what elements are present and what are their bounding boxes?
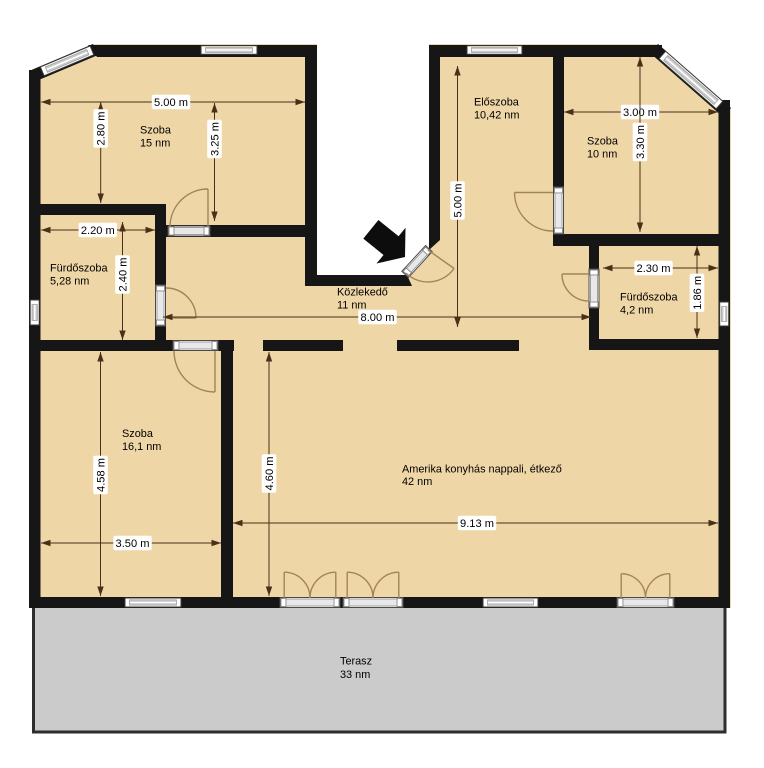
svg-text:10,42 nm: 10,42 nm — [474, 110, 519, 122]
svg-text:9.13 m: 9.13 m — [460, 518, 494, 530]
svg-text:4.58 m: 4.58 m — [95, 458, 107, 492]
svg-text:Terasz: Terasz — [340, 656, 372, 668]
svg-text:2.40 m: 2.40 m — [117, 258, 129, 292]
svg-text:10 nm: 10 nm — [587, 149, 617, 161]
svg-text:4,2 nm: 4,2 nm — [620, 305, 653, 317]
svg-text:8.00 m: 8.00 m — [361, 312, 395, 324]
svg-text:Előszoba: Előszoba — [474, 97, 520, 109]
svg-text:11 nm: 11 nm — [337, 300, 366, 312]
svg-text:33 nm: 33 nm — [340, 669, 370, 681]
svg-text:15 nm: 15 nm — [140, 138, 170, 150]
svg-text:2.30 m: 2.30 m — [637, 263, 671, 275]
svg-text:5,28 nm: 5,28 nm — [50, 276, 89, 288]
svg-text:2.20 m: 2.20 m — [81, 225, 115, 237]
svg-text:42 nm: 42 nm — [402, 476, 432, 488]
svg-text:16,1 nm: 16,1 nm — [122, 441, 161, 453]
svg-text:3.50 m: 3.50 m — [116, 538, 150, 550]
svg-text:Fürdőszoba: Fürdőszoba — [50, 263, 108, 275]
svg-text:5.00 m: 5.00 m — [452, 184, 464, 218]
svg-text:Fürdőszoba: Fürdőszoba — [620, 292, 678, 304]
svg-text:2.80 m: 2.80 m — [95, 112, 107, 146]
svg-text:Közlekedő: Közlekedő — [337, 287, 388, 299]
svg-text:1.86 m: 1.86 m — [692, 276, 704, 310]
svg-text:4.60 m: 4.60 m — [264, 457, 276, 491]
svg-text:3.25 m: 3.25 m — [209, 122, 221, 156]
svg-text:Szoba: Szoba — [122, 428, 154, 440]
svg-text:5.00 m: 5.00 m — [154, 97, 188, 109]
svg-text:Amerika konyhás nappali, étkez: Amerika konyhás nappali, étkező — [402, 464, 562, 476]
svg-text:3.30 m: 3.30 m — [635, 125, 647, 159]
svg-text:Szoba: Szoba — [140, 125, 172, 137]
svg-text:Szoba: Szoba — [587, 136, 619, 148]
